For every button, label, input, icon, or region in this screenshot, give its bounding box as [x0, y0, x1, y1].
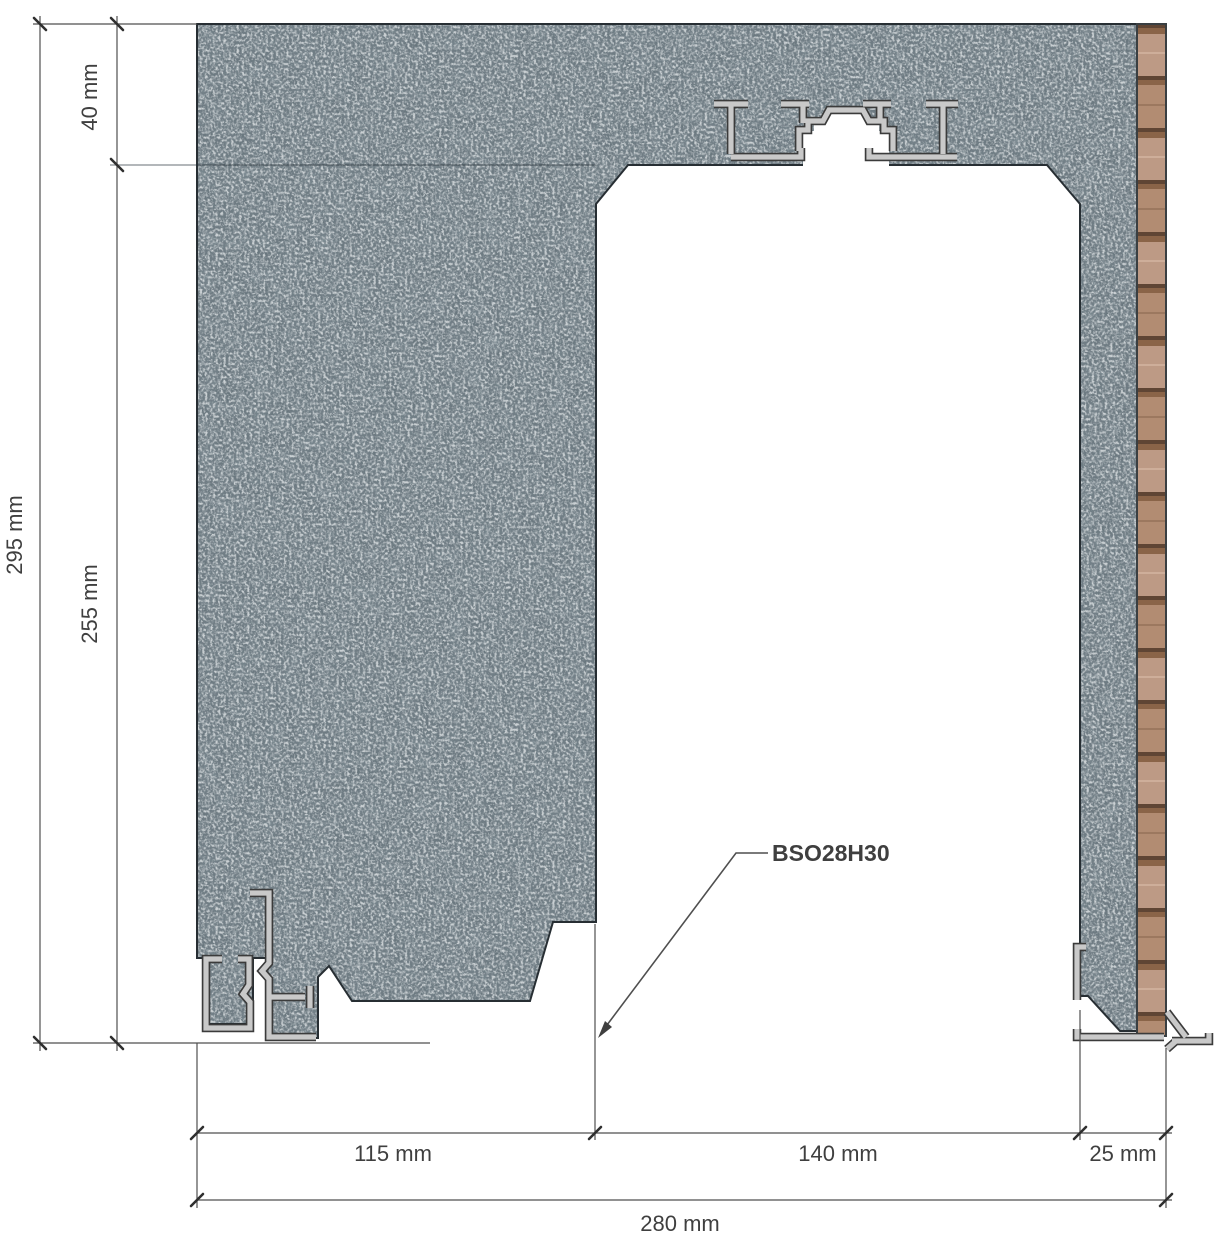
profile-label: BSO28H30	[772, 840, 890, 866]
dim-label-right-jamb-width: 25 mm	[1089, 1141, 1156, 1166]
dim-label-opening-width: 140 mm	[798, 1141, 877, 1166]
masonry-light-speckle-layer	[190, 18, 1150, 1048]
section-drawing: 295 mm 40 mm 255 mm 115 mm 140 mm 25 mm …	[0, 0, 1217, 1255]
leader-arrowhead-icon	[598, 1021, 612, 1038]
dim-label-top-offset: 40 mm	[77, 63, 102, 130]
dim-label-overall-height: 295 mm	[2, 495, 27, 574]
masonry-section	[190, 18, 1150, 1048]
label-leader	[598, 853, 768, 1038]
dim-label-overall-width: 280 mm	[640, 1211, 719, 1236]
technical-drawing-canvas: 295 mm 40 mm 255 mm 115 mm 140 mm 25 mm …	[0, 0, 1217, 1255]
wood-strip	[1137, 24, 1166, 1036]
dim-label-left-jamb-width: 115 mm	[354, 1141, 432, 1166]
leader-line	[601, 853, 768, 1033]
wood-cladding	[1137, 24, 1166, 1036]
dim-label-lower-height: 255 mm	[77, 564, 102, 643]
